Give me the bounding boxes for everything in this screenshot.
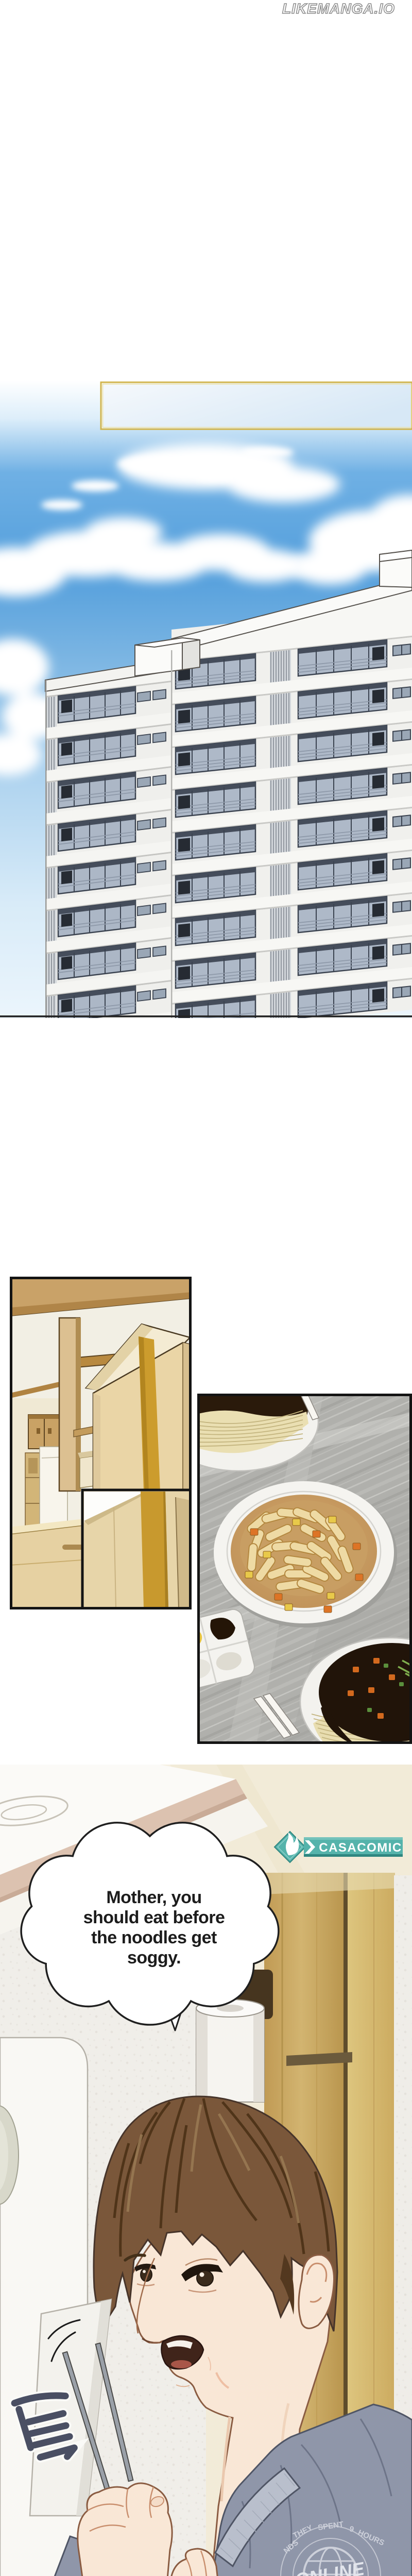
svg-text:soggy.: soggy. (127, 1948, 181, 1968)
svg-text:the noodles get: the noodles get (91, 1928, 217, 1947)
svg-text:Mother, you: Mother, you (106, 1888, 201, 1907)
svg-text:CASACOMIC: CASACOMIC (319, 1841, 402, 1855)
svg-text:should eat before: should eat before (83, 1908, 225, 1927)
